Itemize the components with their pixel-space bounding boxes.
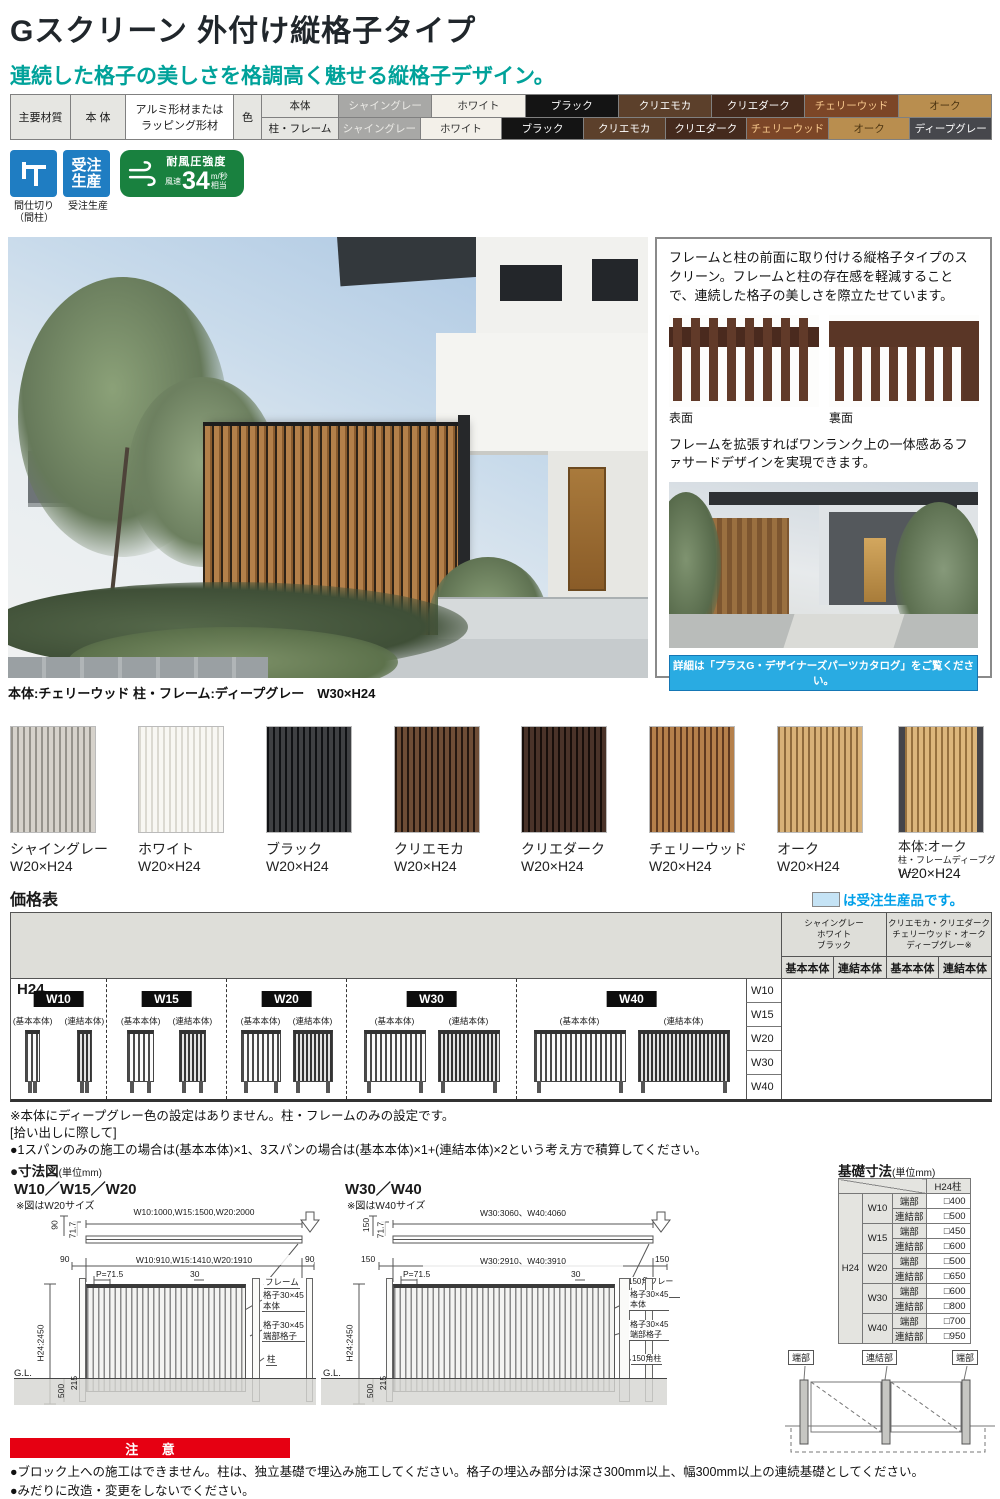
price-group-w30: W30 (基本本体) (連結本体) bbox=[346, 979, 516, 1099]
dimension-drawing-w30-w40: W30／W40 ※図はW40サイズ W30:3060、W40:4060 150 … bbox=[345, 1178, 680, 1428]
fence-icon bbox=[77, 1030, 92, 1082]
foundation-diagram-label-edge: 端部 bbox=[952, 1350, 978, 1365]
foundation-value: □450 bbox=[926, 1224, 970, 1239]
spec-color-table: 主要材質 本 体 アルミ形材または ラッピング形材 色 本体 シャイングレー ホ… bbox=[10, 94, 992, 140]
swatch-oak-deepgray bbox=[898, 726, 984, 833]
price-group-w20: W20 (基本本体) (連結本体) bbox=[226, 979, 346, 1099]
swatch-crea-dark bbox=[521, 726, 607, 833]
color-chip: チェリーウッド bbox=[805, 95, 898, 117]
dim-top: W10:1000,W15:1500,W20:2000 bbox=[94, 1207, 294, 1217]
facade-photo bbox=[669, 482, 978, 648]
curb bbox=[8, 657, 268, 678]
size-badge: W30 bbox=[406, 991, 457, 1007]
catalog-reference-banner: 詳細は「プラスG・デザイナーズパーツカタログ」をご覧ください。 bbox=[669, 655, 978, 691]
back-rail bbox=[829, 321, 979, 347]
swatch-size: W20×H24 bbox=[10, 858, 73, 874]
dim-height: H24:2450 bbox=[35, 1325, 45, 1362]
window bbox=[500, 265, 562, 301]
price-row-label: W10 bbox=[746, 979, 781, 1003]
order-badge-line1: 受注 bbox=[71, 158, 101, 174]
entrance-steps bbox=[438, 597, 648, 639]
basic-label: (基本本体) bbox=[13, 1015, 53, 1027]
price-row-labels: W10 W15 W20 W30 W40 bbox=[746, 979, 782, 1099]
foundation-w: W20 bbox=[863, 1254, 893, 1284]
dim-offset: 30 bbox=[571, 1269, 580, 1279]
foundation-row-header: H24 bbox=[839, 1194, 863, 1344]
color-chip: シャイングレー bbox=[339, 95, 432, 117]
front-view-figure: 表面 bbox=[669, 315, 819, 426]
dim-side-left: 90 bbox=[60, 1254, 69, 1264]
fence-icon bbox=[364, 1030, 426, 1082]
info-panel: フレームと柱の前面に取り付ける縦格子タイプのスクリーン。フレームと柱の存在感を軽… bbox=[655, 237, 992, 678]
swatch-name: オーク bbox=[777, 839, 819, 859]
frame-label: フレーム bbox=[264, 1277, 300, 1289]
dim-top: W30:3060、W40:4060 bbox=[423, 1207, 623, 1219]
swatch-oak bbox=[777, 726, 863, 833]
spec-material-label: 主要材質 bbox=[11, 95, 71, 139]
main-photo bbox=[8, 237, 648, 678]
price-row-label: W30 bbox=[746, 1051, 781, 1075]
spec-row2-label: 柱・フレーム bbox=[262, 118, 339, 140]
swatch-white bbox=[138, 726, 224, 833]
foundation-value: □650 bbox=[926, 1269, 970, 1284]
entry-door bbox=[864, 538, 886, 602]
price-subcol: 基本本体 bbox=[782, 957, 834, 979]
color-chip: クリエダーク bbox=[666, 118, 748, 140]
price-group-w40: W40 (基本本体) (連結本体) bbox=[516, 979, 746, 1099]
wind-pressure-badge: 耐風圧強度 風速 34 m/秒 相当 bbox=[120, 150, 244, 197]
price-row-label: W15 bbox=[746, 1003, 781, 1027]
price-row-label: W40 bbox=[746, 1075, 781, 1099]
price-group-w15: W15 (基本本体) (連結本体) bbox=[106, 979, 226, 1099]
foundation-diagram-label-edge: 端部 bbox=[788, 1350, 814, 1365]
drawing-note: ※図はW20サイズ bbox=[16, 1197, 95, 1212]
lattice-edge-label: 格子30×45 端部格子 bbox=[629, 1320, 669, 1341]
spec-frame-color-row: 柱・フレーム シャイングレー ホワイト ブラック クリエモカ クリエダーク チェ… bbox=[262, 118, 991, 140]
dim-mid: W10:910,W15:1410,W20:1910 bbox=[94, 1255, 294, 1265]
price-colgroup-2: クリエモカ・クリエダーク チェリーウッド・オーク ディープグレー※ bbox=[887, 913, 991, 957]
dim-150: 150 bbox=[361, 1218, 371, 1232]
swatch-crea-mocha bbox=[394, 726, 480, 833]
foundation-value: □500 bbox=[926, 1254, 970, 1269]
made-to-order-legend-text: は受注生産品です。 bbox=[843, 889, 963, 909]
color-chip: ブラック bbox=[526, 95, 619, 117]
dim-offset: 30 bbox=[190, 1269, 199, 1279]
dim-215: 215 bbox=[378, 1376, 388, 1390]
order-caption: 受注生産 bbox=[60, 201, 116, 213]
swatch-name: ホワイト bbox=[138, 839, 194, 859]
color-chip: ホワイト bbox=[432, 95, 525, 117]
swatch-size: W20×H24 bbox=[521, 858, 584, 874]
dim-side-left: 150 bbox=[361, 1254, 375, 1264]
foundation-w: W40 bbox=[863, 1314, 893, 1344]
fence-icon bbox=[638, 1030, 730, 1082]
price-table-header-blank bbox=[11, 913, 782, 979]
load-direction-arrow bbox=[301, 1212, 319, 1232]
back-post bbox=[963, 321, 979, 401]
note-pickup-detail: ●1スパンのみの施工の場合は(基本本体)×1、3スパンの場合は(基本本体)×1+… bbox=[10, 1139, 707, 1158]
foundation-value: □700 bbox=[926, 1314, 970, 1329]
price-table-title: 価格表 bbox=[10, 886, 58, 910]
swatch-size: W20×H24 bbox=[266, 858, 329, 874]
drawing-note: ※図はW40サイズ bbox=[347, 1197, 426, 1212]
foundation-value: □600 bbox=[926, 1284, 970, 1299]
fence-icon bbox=[293, 1030, 333, 1082]
color-chip: ホワイト bbox=[421, 118, 503, 140]
swatch-name: クリエダーク bbox=[521, 839, 605, 859]
lattice-edge-label: 格子30×45 端部格子 bbox=[262, 1320, 305, 1342]
partition-icon bbox=[17, 157, 51, 191]
joint-label: (連結本体) bbox=[293, 1015, 333, 1027]
dim-500: 500 bbox=[56, 1384, 66, 1398]
dim-71-7: 71.7 bbox=[67, 1222, 77, 1239]
spec-target-label: 本 体 bbox=[71, 95, 126, 139]
foundation-value: □400 bbox=[926, 1194, 970, 1209]
color-chip: オーク bbox=[829, 118, 911, 140]
foundation-value: □950 bbox=[926, 1329, 970, 1344]
swatch-name: チェリーウッド bbox=[649, 839, 747, 859]
color-chip: ディープグレー bbox=[910, 118, 991, 140]
dim-pitch: P=71.5 bbox=[96, 1269, 123, 1279]
spec-body-color-row: 本体 シャイングレー ホワイト ブラック クリエモカ クリエダーク チェリーウッ… bbox=[262, 95, 991, 118]
spec-row1-label: 本体 bbox=[262, 95, 339, 117]
color-chip: ブラック bbox=[502, 118, 584, 140]
foundation-corner-cell bbox=[839, 1179, 927, 1194]
order-badge-line2: 生産 bbox=[71, 174, 101, 190]
price-subcol: 連結本体 bbox=[939, 957, 991, 979]
foundation-section-title: 基礎寸法(単位mm) bbox=[838, 1160, 935, 1180]
swatch-cherry-wood bbox=[649, 726, 735, 833]
drawing-title: W30／W40 bbox=[345, 1178, 422, 1199]
fence-icon bbox=[127, 1030, 154, 1082]
swatch-size: W20×H24 bbox=[138, 858, 201, 874]
price-group-w10: W10 (基本本体) (連結本体) bbox=[11, 979, 106, 1099]
price-subcol: 基本本体 bbox=[887, 957, 939, 979]
price-row-label: W20 bbox=[746, 1027, 781, 1051]
joint-label: (連結本体) bbox=[65, 1015, 105, 1027]
made-to-order-legend-swatch bbox=[812, 892, 840, 907]
foundation-w: W15 bbox=[863, 1224, 893, 1254]
dim-side-right: 90 bbox=[305, 1254, 314, 1264]
load-direction-arrow bbox=[652, 1212, 670, 1232]
entrance-door bbox=[568, 467, 606, 591]
dim-215: 215 bbox=[69, 1376, 79, 1390]
price-colgroup-1: シャイングレー ホワイト ブラック bbox=[782, 913, 887, 957]
foundation-value: □800 bbox=[926, 1299, 970, 1314]
foundation-diagram-label-joint: 連結部 bbox=[862, 1350, 897, 1365]
back-view-caption: 裏面 bbox=[829, 409, 979, 426]
caution-line-2: ●みだりに改造・変更をしないでください。 bbox=[10, 1480, 255, 1499]
foundation-w: W30 bbox=[863, 1284, 893, 1314]
basic-label: (基本本体) bbox=[241, 1015, 281, 1027]
foundation-value: □600 bbox=[926, 1239, 970, 1254]
post-label: 150角柱 bbox=[631, 1354, 662, 1365]
front-view-image bbox=[669, 315, 819, 407]
dimension-drawing-w10-w20: W10／W15／W20 ※図はW20サイズ W10:1000,W15:1500,… bbox=[14, 1178, 324, 1428]
color-chip: シャイングレー bbox=[339, 118, 421, 140]
color-chip: オーク bbox=[899, 95, 991, 117]
caution-banner: 注 意 bbox=[10, 1438, 290, 1458]
deep-gray-post bbox=[977, 727, 983, 832]
window bbox=[592, 259, 638, 301]
swatch-name: シャイングレー bbox=[10, 839, 108, 859]
lattice-panel bbox=[393, 1284, 615, 1392]
drawing-title: W10／W15／W20 bbox=[14, 1178, 137, 1199]
dim-pitch: P=71.5 bbox=[403, 1269, 430, 1279]
size-badge: W40 bbox=[606, 991, 657, 1007]
color-chip: チェリーウッド bbox=[747, 118, 829, 140]
dim-71-7: 71.7 bbox=[375, 1222, 385, 1239]
lattice-panel bbox=[86, 1284, 246, 1392]
foundation-col-header: H24柱 bbox=[926, 1179, 970, 1194]
wind-prefix: 風速 bbox=[165, 178, 181, 186]
dimension-section-title: ●寸法図(単位mm) bbox=[10, 1160, 102, 1180]
partition-caption: 間仕切り （間柱） bbox=[6, 201, 62, 225]
size-badge: W15 bbox=[141, 991, 192, 1007]
dim-90: 90 bbox=[50, 1220, 60, 1229]
swatch-size: W20×H24 bbox=[394, 858, 457, 874]
deep-gray-post bbox=[899, 727, 905, 832]
lattice-body-label: 格子30×45 本体 bbox=[629, 1290, 669, 1311]
back-view-image bbox=[829, 315, 979, 407]
price-subcol: 連結本体 bbox=[834, 957, 887, 979]
dim-side-right: 150 bbox=[655, 1254, 669, 1264]
lattice-body-label: 格子30×45 本体 bbox=[262, 1290, 305, 1312]
main-photo-caption: 本体:チェリーウッド 柱・フレーム:ディープグレー W30×H24 bbox=[8, 683, 375, 702]
swatch-size: W20×H24 bbox=[649, 858, 712, 874]
swatch-shine-gray bbox=[10, 726, 96, 833]
caution-line-1: ●ブロック上への施工はできません。柱は、独立基礎で埋込み施工してください。格子の… bbox=[10, 1461, 924, 1480]
back-view-figure: 裏面 bbox=[829, 315, 979, 426]
foundation-diagram bbox=[785, 1366, 995, 1458]
partition-badge bbox=[10, 150, 57, 197]
price-table: シャイングレー ホワイト ブラック クリエモカ・クリエダーク チェリーウッド・オ… bbox=[10, 912, 992, 1102]
price-table-diagram-area: H24 W10 (基本本体) (連結本体) W15 (基本本体) (連結本体) … bbox=[11, 979, 782, 1099]
basic-label: (基本本体) bbox=[375, 1015, 415, 1027]
catalog-page: Gスクリーン 外付け縦格子タイプ 連続した格子の美しさを格調高く魅せる縦格子デザ… bbox=[0, 0, 1000, 1499]
joint-label: (連結本体) bbox=[664, 1015, 704, 1027]
post-label: 柱 bbox=[266, 1354, 277, 1366]
color-chip: クリエモカ bbox=[619, 95, 712, 117]
wind-value: 34 bbox=[182, 169, 210, 194]
panel-paragraph-1: フレームと柱の前面に取り付ける縦格子タイプのスクリーン。フレームと柱の存在感を軽… bbox=[669, 249, 978, 306]
swatch-name: クリエモカ bbox=[394, 839, 464, 859]
dim-500: 500 bbox=[365, 1384, 375, 1398]
foundation-w: W10 bbox=[863, 1194, 893, 1224]
page-subtitle: 連続した格子の美しさを格調高く魅せる縦格子デザイン。 bbox=[10, 60, 555, 90]
joint-label: (連結本体) bbox=[173, 1015, 213, 1027]
front-slats bbox=[673, 318, 815, 401]
panel-paragraph-2: フレームを拡張すればワンランク上の一体感あるファサードデザインを実現できます。 bbox=[669, 436, 978, 474]
fence-icon bbox=[534, 1030, 626, 1082]
dim-height: H24:2450 bbox=[344, 1325, 354, 1362]
fence-icon bbox=[241, 1030, 281, 1082]
dim-mid: W30:2910、W40:3910 bbox=[423, 1255, 623, 1267]
foundation-table: H24柱 H24 W10 端部 □400 連結部□500 W15端部□450 連… bbox=[838, 1178, 971, 1344]
size-badge: W10 bbox=[33, 991, 84, 1007]
color-chip: クリエモカ bbox=[584, 118, 666, 140]
made-to-order-badge: 受注 生産 bbox=[63, 150, 110, 197]
color-chip: クリエダーク bbox=[712, 95, 805, 117]
swatch-black bbox=[266, 726, 352, 833]
page-title: Gスクリーン 外付け縦格子タイプ bbox=[10, 6, 476, 50]
spec-material-value: アルミ形材または ラッピング形材 bbox=[126, 95, 234, 139]
basic-label: (基本本体) bbox=[560, 1015, 600, 1027]
walk-path bbox=[783, 614, 904, 648]
basic-label: (基本本体) bbox=[121, 1015, 161, 1027]
swatch-name: ブラック bbox=[266, 839, 322, 859]
joint-label: (連結本体) bbox=[449, 1015, 489, 1027]
fence-icon bbox=[438, 1030, 500, 1082]
fence-icon bbox=[25, 1030, 40, 1082]
spec-color-label: 色 bbox=[234, 95, 262, 139]
wind-unit-suffix: 相当 bbox=[211, 182, 228, 190]
fence-icon bbox=[179, 1030, 206, 1082]
foundation-value: □500 bbox=[926, 1209, 970, 1224]
swatch-size: W20×H24 bbox=[777, 858, 840, 874]
front-view-caption: 表面 bbox=[669, 409, 819, 426]
wind-icon bbox=[127, 156, 161, 192]
swatch-size: W20×H24 bbox=[898, 865, 961, 881]
size-badge: W20 bbox=[261, 991, 312, 1007]
